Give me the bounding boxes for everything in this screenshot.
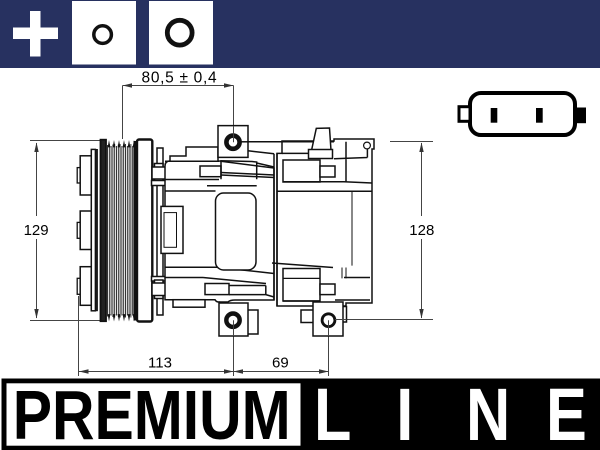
svg-text:128: 128 bbox=[409, 222, 434, 239]
svg-text:E: E bbox=[546, 375, 587, 450]
svg-text:113: 113 bbox=[148, 354, 172, 371]
svg-text:PREMIUM: PREMIUM bbox=[13, 376, 291, 450]
svg-text:80,5 ± 0,4: 80,5 ± 0,4 bbox=[142, 69, 218, 86]
svg-text:L: L bbox=[314, 375, 351, 450]
svg-text:I: I bbox=[396, 375, 413, 450]
svg-text:129: 129 bbox=[24, 222, 49, 239]
svg-text:N: N bbox=[466, 375, 510, 450]
svg-text:69: 69 bbox=[272, 355, 289, 372]
